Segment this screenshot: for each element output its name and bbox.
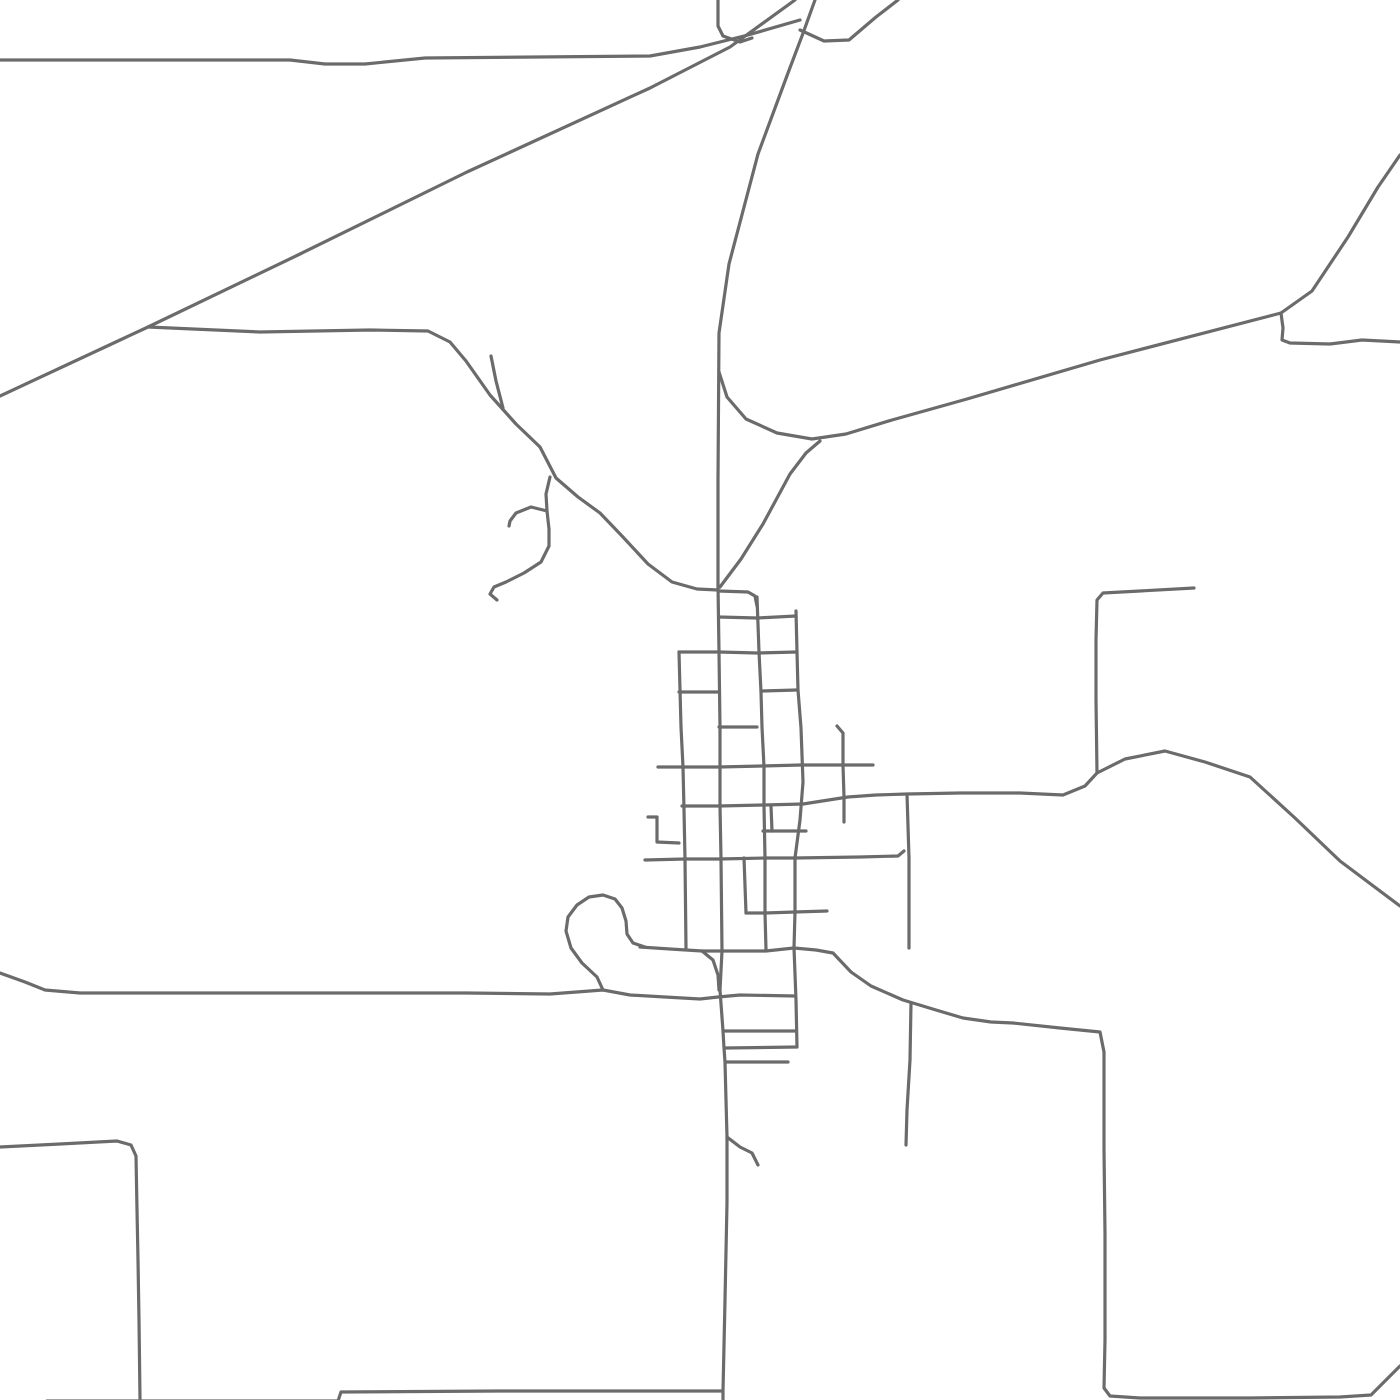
road-grid-h-652 (679, 652, 797, 653)
road-creek-spur (509, 507, 547, 526)
road-grid-vertical-short-b (771, 806, 772, 831)
road-grid-vertical-2 (757, 597, 766, 950)
road-grid-h-592 (719, 591, 757, 606)
road-left-rectangle-road (0, 1141, 140, 1399)
road-pond-loop (566, 895, 645, 990)
road-grid-h-913 (746, 911, 827, 913)
road-junction-ne-connector (720, 441, 820, 587)
road-creek-squiggle (490, 477, 550, 600)
road-grid-h-766 (658, 765, 873, 767)
road-grid-vertical-5 (907, 794, 909, 948)
road-grid-h-1047 (726, 1047, 797, 1048)
road-top-horizontal-west (0, 20, 800, 64)
road-northwest-curve-to-town (148, 327, 718, 590)
road-grid-vertical-short-a (744, 858, 746, 913)
road-hump-road-east (1097, 751, 1400, 906)
road-north-hook-road (1096, 588, 1194, 773)
road-main-highway (718, 0, 815, 1400)
road-grid-vertical-6 (906, 1003, 911, 1145)
road-west-road (0, 973, 795, 999)
road-southeast-curve-road (640, 947, 1400, 1398)
map-container (0, 0, 1400, 1400)
road-grid-vertical-3 (794, 611, 803, 1047)
road-hook-817 (648, 817, 679, 843)
road-east-hook-horizontal (1281, 313, 1400, 344)
road-arc-northeast (800, 0, 898, 41)
road-southeast-spur (727, 1137, 758, 1165)
road-bottom-road (47, 1391, 722, 1400)
road-east-main-street (682, 773, 1097, 806)
road-east-branch (719, 155, 1400, 439)
road-grid-vertical-west (679, 652, 686, 948)
road-grid-h-691-east (761, 690, 797, 691)
road-map-svg (0, 0, 1400, 1400)
road-pond-close-segment (702, 951, 719, 990)
road-grid-vertical-4 (837, 726, 844, 822)
